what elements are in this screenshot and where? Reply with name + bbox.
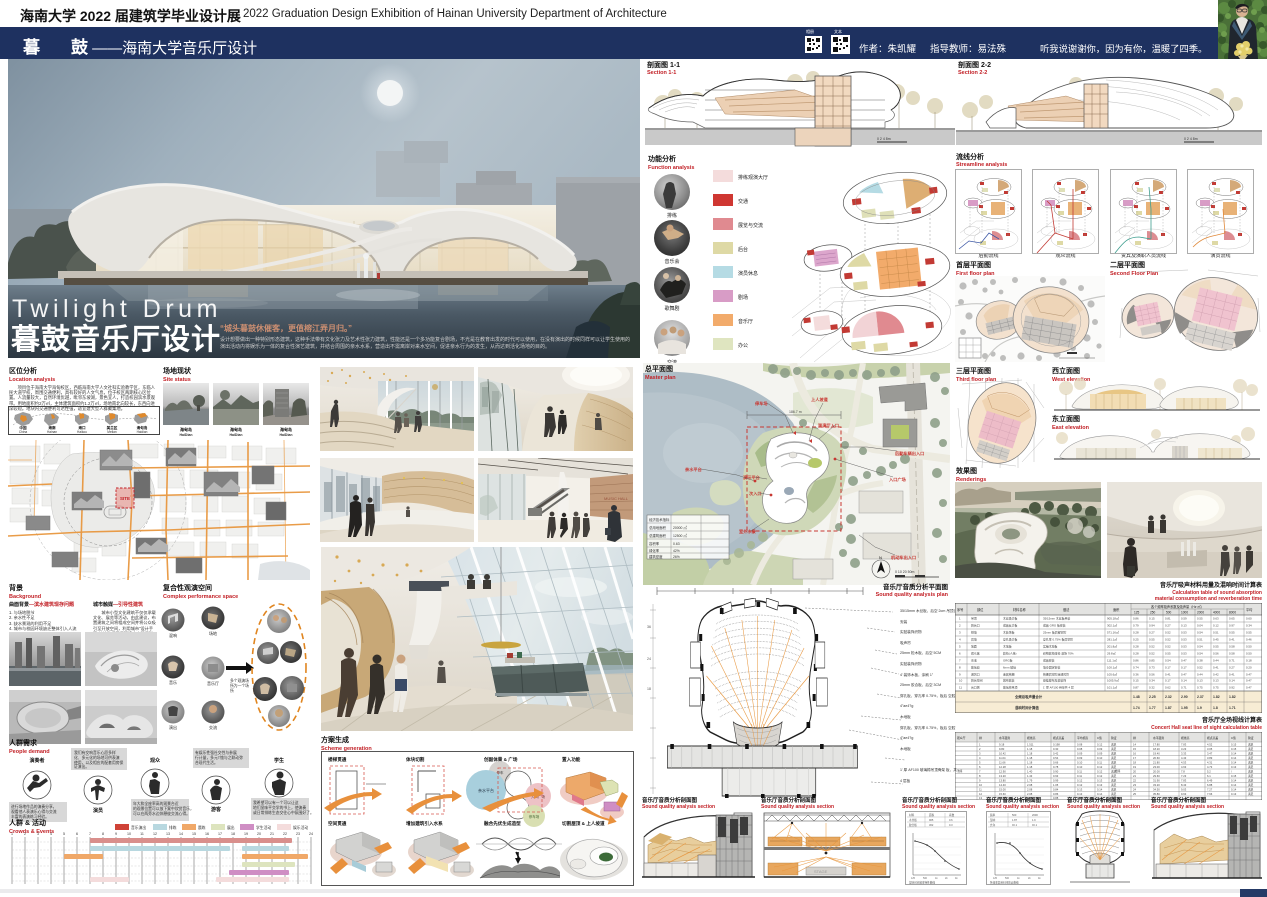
svg-text:0.52: 0.52 xyxy=(1165,645,1171,649)
svg-text:4: 4 xyxy=(979,756,981,760)
svg-text:1.77: 1.77 xyxy=(1149,706,1156,710)
svg-text:允许: 允许 xyxy=(990,823,996,827)
svg-text:满足: 满足 xyxy=(1111,756,1117,760)
svg-text:1.9: 1.9 xyxy=(1197,706,1202,710)
svg-text:0.53: 0.53 xyxy=(1181,638,1187,642)
svg-text:乐池: 乐池 xyxy=(971,658,977,663)
svg-text:0.53: 0.53 xyxy=(1181,645,1187,649)
svg-text:19: 19 xyxy=(244,832,248,836)
svg-text:1005.9㎡: 1005.9㎡ xyxy=(1107,678,1119,683)
svg-text:0.12: 0.12 xyxy=(1077,783,1083,787)
svg-text:满足: 满足 xyxy=(1248,756,1254,760)
svg-text:排: 排 xyxy=(1133,736,1136,740)
svg-text:满足: 满足 xyxy=(1248,788,1254,792)
svg-text:13: 13 xyxy=(166,832,170,836)
svg-text:14: 14 xyxy=(179,832,183,836)
svg-text:7: 7 xyxy=(979,770,981,774)
svg-text:水平距离: 水平距离 xyxy=(999,736,1010,740)
svg-text:0.94: 0.94 xyxy=(1149,624,1155,628)
svg-text:交通: 交通 xyxy=(738,198,748,205)
svg-text:穿孔吸声板: 穿孔吸声板 xyxy=(1003,637,1018,642)
svg-text:2.32: 2.32 xyxy=(1165,695,1172,699)
svg-text:13.20: 13.20 xyxy=(999,774,1006,778)
svg-text:0.12: 0.12 xyxy=(1213,624,1219,628)
svg-text:4.43: 4.43 xyxy=(1181,756,1187,760)
svg-text:±0.1: ±0.1 xyxy=(1012,823,1018,827)
svg-text:302.1㎡: 302.1㎡ xyxy=(1107,623,1117,628)
svg-text:2: 2 xyxy=(979,747,981,751)
svg-text:0.41: 0.41 xyxy=(1213,666,1219,670)
svg-text:木丝板: 木丝板 xyxy=(909,818,917,822)
svg-text:0.65: 0.65 xyxy=(1229,617,1235,621)
svg-text:玻璃棉吊顶: 玻璃棉吊顶 xyxy=(1003,685,1018,690)
svg-text:0.52: 0.52 xyxy=(1149,645,1155,649)
svg-text:N: N xyxy=(879,555,882,560)
svg-text:3.23: 3.23 xyxy=(1181,747,1187,751)
svg-text:201.8㎡: 201.8㎡ xyxy=(1107,644,1117,649)
svg-text:1.18: 1.18 xyxy=(1027,747,1033,751)
svg-text:入口广场: 入口广场 xyxy=(888,476,907,483)
svg-text:SITE: SITE xyxy=(120,496,130,501)
svg-text:0.55: 0.55 xyxy=(1213,645,1219,649)
svg-text:0.71: 0.71 xyxy=(1181,686,1187,690)
svg-text:丰富的表演练习经验。: 丰富的表演练习经验。 xyxy=(11,814,49,819)
svg-text:6.88: 6.88 xyxy=(1207,783,1213,787)
svg-text:10: 10 xyxy=(127,832,131,836)
svg-text:11: 11 xyxy=(979,788,982,792)
svg-text:0.86: 0.86 xyxy=(1133,617,1139,621)
svg-text:视线高: 视线高 xyxy=(1181,736,1190,740)
svg-text:各频率混响时间验证曲线: 各频率混响时间验证曲线 xyxy=(990,881,1019,885)
svg-text:0.28: 0.28 xyxy=(1133,645,1139,649)
svg-text:1.18: 1.18 xyxy=(1027,752,1033,756)
svg-text:11: 11 xyxy=(959,686,962,690)
svg-text:我们有交响音乐心愿多样: 我们有交响音乐心愿多样 xyxy=(74,750,116,755)
svg-text:满足: 满足 xyxy=(1111,779,1117,783)
svg-text:20.00: 20.00 xyxy=(1153,770,1160,774)
svg-text:0.79: 0.79 xyxy=(1133,624,1139,628)
svg-text:26%: 26% xyxy=(673,555,680,559)
svg-text:4.63: 4.63 xyxy=(1181,765,1187,769)
svg-text:亲水平台: 亲水平台 xyxy=(685,466,702,473)
svg-text:0.28: 0.28 xyxy=(1133,631,1139,635)
svg-text:C值: C值 xyxy=(1231,736,1236,740)
svg-text:满足: 满足 xyxy=(1111,747,1117,751)
svg-text:进行场地作品的演奏分享，: 进行场地作品的演奏分享， xyxy=(11,804,57,809)
svg-text:6: 6 xyxy=(959,652,961,656)
svg-text:成品反声板: 成品反声板 xyxy=(1003,623,1018,628)
svg-text:33.20: 33.20 xyxy=(1153,783,1160,787)
svg-text:1: 1 xyxy=(959,617,961,621)
svg-text:混响时间频率特性曲线: 混响时间频率特性曲线 xyxy=(909,881,935,885)
svg-text:0.14: 0.14 xyxy=(1231,761,1237,765)
svg-text:0.50: 0.50 xyxy=(1246,652,1252,656)
svg-text:0.13: 0.13 xyxy=(1077,788,1083,792)
svg-text:演员休息: 演员休息 xyxy=(738,270,758,277)
svg-text:20: 20 xyxy=(257,832,261,836)
svg-text:0.54: 0.54 xyxy=(1197,652,1203,656)
svg-text:混响时间计算值: 混响时间计算值 xyxy=(1015,705,1039,710)
svg-text:0.13: 0.13 xyxy=(1097,779,1103,783)
svg-text:186.7 m: 186.7 m xyxy=(789,410,802,414)
svg-text:0.34: 0.34 xyxy=(1149,679,1155,683)
svg-text:4000: 4000 xyxy=(1213,611,1220,615)
svg-text:“城头暮鼓休催客，更值榕江弄月归。”: “城头暮鼓休催客，更值榕江弄月归。” xyxy=(220,323,352,333)
svg-text:容积率: 容积率 xyxy=(649,541,660,546)
svg-text:1.511: 1.511 xyxy=(1027,743,1034,747)
svg-text:0.12: 0.12 xyxy=(1097,770,1103,774)
svg-text:14: 14 xyxy=(1133,743,1136,747)
svg-text:地们显味平交学的书上，使演奏: 地们显味平交学的书上，使演奏 xyxy=(253,805,306,810)
svg-text:观众厅: 观众厅 xyxy=(957,736,966,740)
svg-text:Meilan: Meilan xyxy=(107,430,117,434)
svg-text:6: 6 xyxy=(76,832,78,836)
svg-text:2000: 2000 xyxy=(1032,813,1038,817)
svg-text:23: 23 xyxy=(1133,783,1136,787)
svg-text:23: 23 xyxy=(296,832,300,836)
svg-text:Twilight Drum: Twilight Drum xyxy=(12,295,222,323)
svg-text:0.11: 0.11 xyxy=(1077,774,1083,778)
svg-text:0.75: 0.75 xyxy=(1197,686,1203,690)
svg-text:1.71: 1.71 xyxy=(1229,706,1236,710)
svg-text:9: 9 xyxy=(979,779,981,783)
svg-text:0.73: 0.73 xyxy=(1149,666,1155,670)
svg-text:木丝吸声板: 木丝吸声板 xyxy=(1003,616,1018,621)
svg-text:905.18㎡: 905.18㎡ xyxy=(1107,616,1119,621)
svg-text:满足: 满足 xyxy=(1248,743,1254,747)
svg-text:13.80: 13.80 xyxy=(999,779,1006,783)
svg-text:0.3: 0.3 xyxy=(949,823,953,827)
svg-text:0.42: 0.42 xyxy=(1213,673,1219,677)
svg-text:0.12: 0.12 xyxy=(1097,765,1103,769)
svg-text:各个频率吸声系数及吸声量（Hz·㎡）: 各个频率吸声系数及吸声量（Hz·㎡） xyxy=(1151,604,1204,609)
svg-text:0.56: 0.56 xyxy=(1149,673,1155,677)
svg-text:0 10 20 50m: 0 10 20 50m xyxy=(895,570,915,574)
svg-text:演奏者: 演奏者 xyxy=(29,757,44,764)
svg-text:0.17: 0.17 xyxy=(1165,679,1171,683)
svg-text:0.15: 0.15 xyxy=(1231,747,1237,751)
svg-text:亲水平台: 亲水平台 xyxy=(478,787,494,793)
svg-text:4: 4 xyxy=(50,832,52,836)
svg-text:6mm 玻璃: 6mm 玻璃 xyxy=(1003,665,1016,670)
svg-text:展出: 展出 xyxy=(227,825,235,830)
svg-text:满足: 满足 xyxy=(1248,783,1254,787)
svg-text:音乐会: 音乐会 xyxy=(664,258,679,265)
svg-text:21: 21 xyxy=(270,832,274,836)
svg-text:的观景位置可以放下案中欣赏音乐，: 的观景位置可以放下案中欣赏音乐， xyxy=(133,806,194,811)
svg-text:排: 排 xyxy=(979,736,982,740)
svg-text:GRG板: GRG板 xyxy=(1003,658,1013,663)
svg-text:HaiDian: HaiDian xyxy=(279,433,292,437)
svg-text:台口侧: 台口侧 xyxy=(971,685,980,690)
svg-text:8: 8 xyxy=(102,832,104,836)
svg-text:1.87: 1.87 xyxy=(1165,706,1172,710)
svg-text:0.17: 0.17 xyxy=(1181,666,1187,670)
svg-text:6.49: 6.49 xyxy=(1207,779,1213,783)
svg-text:20000 ㎡: 20000 ㎡ xyxy=(673,525,687,530)
svg-text:平均视高: 平均视高 xyxy=(1077,736,1088,740)
svg-text:平均: 平均 xyxy=(1246,607,1252,612)
svg-text:1.87: 1.87 xyxy=(1012,818,1018,822)
svg-text:0.93: 0.93 xyxy=(1053,774,1059,778)
svg-text:满足: 满足 xyxy=(1111,743,1117,747)
svg-text:34.50: 34.50 xyxy=(1153,788,1160,792)
svg-text:频率: 频率 xyxy=(990,813,996,817)
svg-text:暮鼓音乐厅设计: 暮鼓音乐厅设计 xyxy=(11,322,221,356)
svg-text:1.43: 1.43 xyxy=(1027,774,1033,778)
svg-text:织物软垫座椅 满场 70%: 织物软垫座椅 满场 70% xyxy=(1043,651,1074,656)
svg-text:0.41: 0.41 xyxy=(1229,638,1235,642)
svg-text:5.2: 5.2 xyxy=(1207,770,1211,774)
svg-text:视点高差: 视点高差 xyxy=(1053,736,1064,740)
svg-text:0.13: 0.13 xyxy=(1231,792,1237,796)
svg-text:29.60: 29.60 xyxy=(1153,774,1160,778)
svg-text:娱乐活动: 娱乐活动 xyxy=(293,825,308,830)
svg-text:1' 厚 AF100 骨架共 4 层: 1' 厚 AF100 骨架共 4 层 xyxy=(1043,685,1074,690)
svg-text:29.8㎡: 29.8㎡ xyxy=(1107,651,1116,656)
svg-text:7: 7 xyxy=(959,659,961,663)
svg-text:1.8: 1.8 xyxy=(1213,706,1218,710)
svg-text:置入功能: 置入功能 xyxy=(562,756,581,763)
svg-text:池座: 池座 xyxy=(957,769,963,773)
svg-text:0.10: 0.10 xyxy=(1077,765,1083,769)
svg-text:0.87: 0.87 xyxy=(1133,686,1139,690)
svg-text:24: 24 xyxy=(309,832,313,836)
svg-text:0.42: 0.42 xyxy=(1053,752,1059,756)
svg-text:36: 36 xyxy=(647,625,651,629)
svg-text:音乐厅: 音乐厅 xyxy=(738,318,753,325)
svg-text:交流: 交流 xyxy=(209,724,217,730)
svg-text:0.54: 0.54 xyxy=(1053,756,1059,760)
svg-text:可以在两旁水边休憩彼交流心得。: 可以在两旁水边休憩彼交流心得。 xyxy=(133,811,190,816)
svg-text:905: 905 xyxy=(929,818,934,822)
svg-text:1.79: 1.79 xyxy=(1027,779,1033,783)
svg-text:材料: 材料 xyxy=(909,813,915,817)
svg-text:验证: 验证 xyxy=(1111,736,1117,740)
svg-text:0.53: 0.53 xyxy=(1181,631,1187,635)
svg-text:0.27: 0.27 xyxy=(1165,624,1171,628)
svg-text:墙身固定安装: 墙身固定安装 xyxy=(1043,665,1060,670)
svg-text:15: 15 xyxy=(1133,747,1136,751)
svg-text:0.47: 0.47 xyxy=(1181,659,1187,663)
svg-text:0.52: 0.52 xyxy=(1165,638,1171,642)
svg-text:建筑密度: 建筑密度 xyxy=(649,554,663,559)
svg-text:24: 24 xyxy=(647,657,651,661)
svg-text:0.15: 0.15 xyxy=(1231,774,1237,778)
svg-text:0.13: 0.13 xyxy=(1213,679,1219,683)
svg-text:满足: 满足 xyxy=(1248,770,1254,774)
svg-text:0.11: 0.11 xyxy=(1097,761,1103,765)
svg-text:25mm 板后留空腔: 25mm 板后留空腔 xyxy=(1043,630,1066,635)
svg-text:1: 1 xyxy=(979,743,981,747)
svg-text:年大和全座率高的观景台近: 年大和全座率高的观景台近 xyxy=(133,801,179,806)
svg-text:部位: 部位 xyxy=(977,607,984,612)
svg-text:面积: 面积 xyxy=(929,813,935,817)
svg-text:0.75: 0.75 xyxy=(1213,686,1219,690)
svg-text:HaiDian: HaiDian xyxy=(179,433,192,437)
svg-text:满足: 满足 xyxy=(1111,783,1117,787)
svg-text:0.59: 0.59 xyxy=(1181,617,1187,621)
svg-text:42%: 42% xyxy=(673,549,680,553)
svg-text:3: 3 xyxy=(959,631,961,635)
svg-text:体块切割: 体块切割 xyxy=(406,756,425,763)
svg-text:排练观演大厅: 排练观演大厅 xyxy=(738,174,768,181)
svg-text:Hainan: Hainan xyxy=(47,430,57,434)
svg-text:舞台口: 舞台口 xyxy=(971,623,980,628)
svg-text:1.05: 1.05 xyxy=(1053,783,1059,787)
svg-text:14.40: 14.40 xyxy=(999,783,1006,787)
svg-text:0.99: 0.99 xyxy=(1053,779,1059,783)
svg-text:海甸岛: 海甸岛 xyxy=(280,426,292,432)
svg-text:0.86: 0.86 xyxy=(1053,792,1059,796)
svg-text:满足: 满足 xyxy=(1248,761,1254,765)
svg-text:所: 所 xyxy=(230,688,234,693)
svg-text:混响: 混响 xyxy=(169,632,177,638)
svg-text:0.54: 0.54 xyxy=(1197,631,1203,635)
svg-text:吊顶: 吊顶 xyxy=(971,617,977,621)
svg-text:排练: 排练 xyxy=(667,212,677,219)
svg-text:侧墙: 侧墙 xyxy=(971,630,977,635)
svg-text:2.90: 2.90 xyxy=(1181,695,1188,699)
svg-text:满足: 满足 xyxy=(1111,765,1117,769)
svg-text:后勤车辆出入口: 后勤车辆出入口 xyxy=(895,450,924,457)
svg-text:晨练: 晨练 xyxy=(198,825,206,830)
svg-text:101.1㎡: 101.1㎡ xyxy=(1107,685,1117,690)
svg-text:1.95: 1.95 xyxy=(1181,706,1188,710)
svg-text:2: 2 xyxy=(24,832,26,836)
svg-text:5: 5 xyxy=(63,832,65,836)
svg-text:办公: 办公 xyxy=(738,342,748,349)
svg-text:4.73: 4.73 xyxy=(1207,765,1213,769)
svg-text:0.27: 0.27 xyxy=(1149,631,1155,635)
svg-text:13: 13 xyxy=(979,796,982,800)
svg-text:满足: 满足 xyxy=(1111,752,1117,756)
svg-text:0.18: 0.18 xyxy=(1246,659,1252,663)
svg-text:设计想要做出一种特别形态建筑，这种手法带有文化张力及艺术性张: 设计想要做出一种特别形态建筑，这种手法带有文化张力及艺术性张力建筑，性能还是一个… xyxy=(220,336,630,343)
svg-text:0.28: 0.28 xyxy=(1133,652,1139,656)
svg-text:满足: 满足 xyxy=(1111,774,1117,778)
svg-text:总用地面积: 总用地面积 xyxy=(649,525,667,530)
svg-text:1.18: 1.18 xyxy=(1027,761,1033,765)
svg-text:7.27: 7.27 xyxy=(1207,788,1213,792)
svg-text:12500 ㎡: 12500 ㎡ xyxy=(673,533,687,538)
svg-text:绿化率: 绿化率 xyxy=(649,548,660,553)
svg-text:9.80: 9.80 xyxy=(999,747,1005,751)
svg-text:歌舞剧: 歌舞剧 xyxy=(664,305,679,312)
svg-text:0.47: 0.47 xyxy=(1246,673,1252,677)
svg-text:0.41: 0.41 xyxy=(1229,673,1235,677)
svg-text:0.15: 0.15 xyxy=(1133,679,1139,683)
svg-text:21.80: 21.80 xyxy=(1153,761,1160,765)
svg-text:21: 21 xyxy=(1133,774,1136,778)
svg-text:125: 125 xyxy=(911,877,916,880)
svg-text:我希望可以有一个可以让这: 我希望可以有一个可以让这 xyxy=(253,800,299,805)
svg-text:楼座: 楼座 xyxy=(1115,769,1121,773)
svg-text:化、多元化的场地可供表演: 化、多元化的场地可供表演 xyxy=(74,755,120,760)
svg-text:0.12: 0.12 xyxy=(1097,774,1103,778)
svg-text:8: 8 xyxy=(959,666,961,670)
svg-text:C值: C值 xyxy=(1097,736,1102,740)
svg-text:4.31: 4.31 xyxy=(1207,761,1213,765)
svg-text:0.14: 0.14 xyxy=(1181,679,1187,683)
svg-text:11.66: 11.66 xyxy=(999,761,1006,765)
svg-text:观众席: 观众席 xyxy=(971,651,980,656)
svg-text:0.10: 0.10 xyxy=(1077,761,1083,765)
svg-text:1.18: 1.18 xyxy=(1027,756,1033,760)
svg-text:500: 500 xyxy=(1166,611,1172,615)
svg-text:20.60: 20.60 xyxy=(1153,756,1160,760)
svg-text:0.78: 0.78 xyxy=(1053,765,1059,769)
svg-text:行计量，多元T恤与之联动弥: 行计量，多元T恤与之联动弥 xyxy=(195,755,243,760)
svg-text:3.89: 3.89 xyxy=(1207,756,1213,760)
svg-text:18: 18 xyxy=(647,687,651,691)
svg-text:12.90: 12.90 xyxy=(999,770,1006,774)
svg-text:0.13: 0.13 xyxy=(1197,679,1203,683)
svg-text:融合先优生成造型: 融合先优生成造型 xyxy=(484,820,521,827)
svg-text:Haikou: Haikou xyxy=(77,430,87,434)
svg-text:0.81: 0.81 xyxy=(1165,617,1171,621)
svg-text:500: 500 xyxy=(1005,877,1010,880)
svg-text:18.20: 18.20 xyxy=(1153,747,1160,751)
svg-text:0.97: 0.97 xyxy=(1229,624,1235,628)
svg-text:全频总吸声量合计: 全频总吸声量合计 xyxy=(1014,694,1043,699)
svg-text:海甸岛: 海甸岛 xyxy=(230,426,242,432)
svg-text:胶合板: 胶合板 xyxy=(909,823,917,827)
svg-text:观众: 观众 xyxy=(150,757,160,764)
svg-text:演出: 演出 xyxy=(169,724,177,730)
svg-text:0.41: 0.41 xyxy=(1165,673,1171,677)
svg-text:学生: 学生 xyxy=(274,757,284,764)
svg-text:100.1㎡: 100.1㎡ xyxy=(1107,665,1117,670)
svg-text:验证: 验证 xyxy=(1248,736,1254,740)
svg-text:0.45: 0.45 xyxy=(1213,638,1219,642)
svg-text:22: 22 xyxy=(283,832,287,836)
svg-text:0.36: 0.36 xyxy=(1133,673,1139,677)
svg-text:9.03: 9.03 xyxy=(1181,788,1187,792)
svg-text:增加建筑引入水系: 增加建筑引入水系 xyxy=(406,820,443,827)
svg-text:0.04: 0.04 xyxy=(1197,624,1203,628)
svg-text:0.52: 0.52 xyxy=(1165,631,1171,635)
svg-text:证演出。: 证演出。 xyxy=(74,764,89,769)
svg-text:1.82: 1.82 xyxy=(1213,695,1220,699)
svg-text:成品 GRG 板安装: 成品 GRG 板安装 xyxy=(1043,623,1066,628)
svg-text:2000: 2000 xyxy=(1197,611,1204,615)
svg-text:3.33: 3.33 xyxy=(1181,752,1187,756)
svg-text:9: 9 xyxy=(115,832,117,836)
svg-text:0.47: 0.47 xyxy=(1246,686,1252,690)
svg-text:满足: 满足 xyxy=(1111,761,1117,765)
svg-text:总建筑面积: 总建筑面积 xyxy=(649,533,667,538)
svg-text:0.27: 0.27 xyxy=(1229,666,1235,670)
svg-text:3: 3 xyxy=(979,752,981,756)
svg-text:系数: 系数 xyxy=(949,813,955,817)
svg-text:0.20: 0.20 xyxy=(1246,666,1252,670)
svg-text:12.28: 12.28 xyxy=(999,765,1006,769)
svg-text:2.25: 2.25 xyxy=(1149,695,1156,699)
svg-text:24: 24 xyxy=(1133,788,1136,792)
svg-text:7.23: 7.23 xyxy=(1181,774,1187,778)
svg-text:玻璃窗: 玻璃窗 xyxy=(971,665,980,670)
svg-text:满足: 满足 xyxy=(1111,792,1117,796)
svg-text:展览与交流: 展览与交流 xyxy=(738,222,763,229)
svg-text:0.14: 0.14 xyxy=(1231,779,1237,783)
svg-text:0.54: 0.54 xyxy=(1197,645,1203,649)
svg-text:0.09: 0.09 xyxy=(1097,747,1103,751)
svg-text:0.15: 0.15 xyxy=(1231,743,1237,747)
svg-text:0.54: 0.54 xyxy=(1165,659,1171,663)
svg-text:16: 16 xyxy=(205,832,209,836)
svg-text:0.13: 0.13 xyxy=(1097,783,1103,787)
